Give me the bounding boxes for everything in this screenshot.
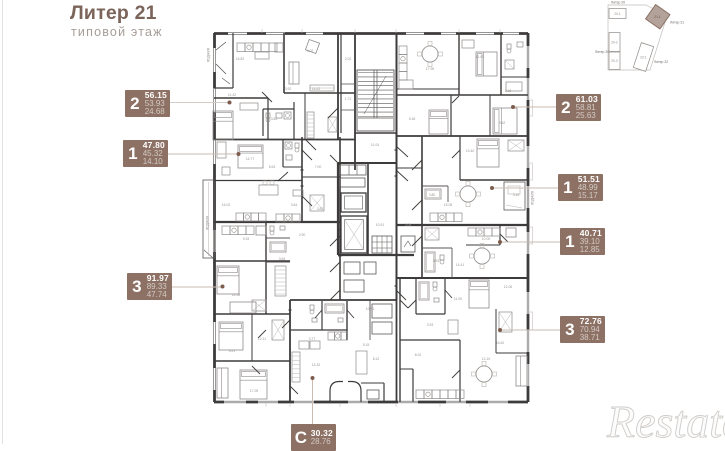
svg-text:11.04: 11.04	[371, 143, 379, 147]
svg-text:3.16: 3.16	[513, 193, 520, 197]
svg-text:2.02: 2.02	[345, 57, 352, 61]
svg-text:12.10: 12.10	[482, 357, 491, 361]
svg-text:5.21: 5.21	[229, 349, 236, 353]
svg-text:3.82: 3.82	[317, 207, 324, 211]
svg-text:21-1: 21-1	[654, 15, 661, 19]
svg-text:Литер 22: Литер 22	[654, 60, 668, 64]
svg-text:3.77: 3.77	[309, 337, 316, 341]
svg-text:14.77: 14.77	[246, 157, 255, 161]
svg-text:10.00: 10.00	[482, 237, 491, 241]
svg-text:14.41: 14.41	[456, 263, 465, 267]
svg-text:ЛОДЖИЯ: ЛОДЖИЯ	[531, 190, 535, 205]
svg-text:3.93: 3.93	[427, 323, 434, 327]
svg-text:16.02: 16.02	[222, 203, 231, 207]
svg-text:ЛОДЖИЯ: ЛОДЖИЯ	[206, 215, 210, 230]
svg-text:16.82: 16.82	[236, 57, 245, 61]
svg-text:12.06: 12.06	[504, 285, 513, 289]
svg-text:5.15: 5.15	[363, 343, 370, 347]
svg-text:20-1: 20-1	[614, 12, 621, 16]
svg-text:3.93: 3.93	[433, 259, 440, 263]
svg-text:22-1: 22-1	[640, 56, 647, 60]
svg-text:8.12: 8.12	[373, 357, 380, 361]
svg-text:13.40: 13.40	[466, 149, 475, 153]
svg-text:7.00: 7.00	[315, 165, 322, 169]
svg-text:12.11: 12.11	[258, 337, 266, 341]
svg-text:4.02: 4.02	[307, 49, 314, 53]
svg-text:3.92: 3.92	[285, 87, 292, 91]
svg-text:14.62: 14.62	[312, 87, 321, 91]
svg-text:9.33: 9.33	[243, 237, 250, 241]
svg-text:9.62: 9.62	[499, 121, 506, 125]
svg-text:17.05: 17.05	[250, 389, 259, 393]
svg-text:20-2: 20-2	[611, 41, 618, 45]
svg-text:Литер 20: Литер 20	[595, 50, 609, 54]
svg-text:11.42: 11.42	[228, 93, 236, 97]
svg-text:10.91: 10.91	[376, 223, 385, 227]
svg-text:11.63: 11.63	[476, 55, 484, 59]
svg-text:11.00: 11.00	[454, 297, 462, 301]
svg-text:20-3: 20-3	[611, 59, 618, 63]
svg-text:3.64: 3.64	[279, 257, 286, 261]
svg-text:2.16: 2.16	[505, 89, 512, 93]
svg-text:15.08: 15.08	[444, 203, 453, 207]
svg-text:5.18: 5.18	[409, 117, 416, 121]
svg-text:6.02: 6.02	[415, 353, 422, 357]
svg-text:17.96: 17.96	[426, 67, 435, 71]
svg-text:14.32: 14.32	[312, 363, 321, 367]
svg-text:5.63: 5.63	[269, 165, 276, 169]
svg-text:2.90: 2.90	[299, 233, 306, 237]
svg-text:Restate: Restate	[606, 396, 725, 444]
svg-text:3.85: 3.85	[271, 117, 278, 121]
svg-text:10.91: 10.91	[366, 307, 375, 311]
svg-text:1.71: 1.71	[345, 97, 352, 101]
svg-text:11.08: 11.08	[232, 293, 240, 297]
svg-text:16.62: 16.62	[496, 341, 505, 345]
svg-text:3.05: 3.05	[405, 223, 412, 227]
svg-text:Литер 21: Литер 21	[670, 21, 684, 25]
svg-text:3.64: 3.64	[291, 203, 298, 207]
svg-text:3.80: 3.80	[429, 193, 436, 197]
svg-text:Литер 20: Литер 20	[611, 1, 625, 5]
svg-text:ЛОДЖИЯ: ЛОДЖИЯ	[207, 47, 211, 62]
